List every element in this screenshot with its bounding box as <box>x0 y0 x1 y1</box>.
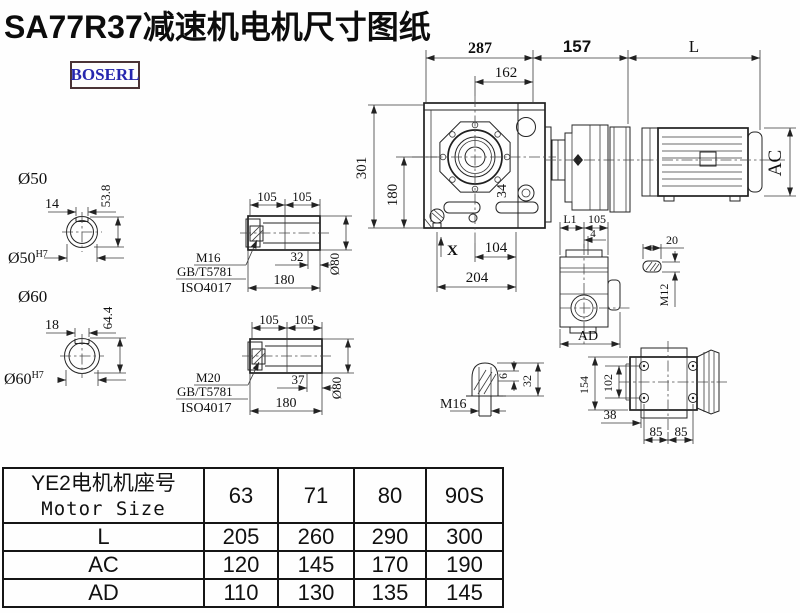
cell-AC-71: 145 <box>278 551 354 579</box>
dim-d80a: Ø80 <box>327 253 342 275</box>
dim-180b: 180 <box>276 396 297 411</box>
drawing-page: SA77R37减速机电机尺寸图纸 BOSERL <box>0 0 800 613</box>
row-label-AC: AC <box>3 551 204 579</box>
dim-105b: 105 <box>292 189 312 204</box>
cell-AD-63: 110 <box>204 579 278 607</box>
label-d60h7: Ø60H7 <box>4 370 44 388</box>
motor-side-view <box>545 125 785 212</box>
rear-view: 154 102 38 85 85 <box>577 341 727 444</box>
dim-105e: 105 <box>588 212 606 226</box>
cell-AD-71: 130 <box>278 579 354 607</box>
dim-180-vertical: 180 <box>385 184 401 207</box>
bore-50: Ø50 <box>8 250 36 267</box>
label-m20: M20 <box>196 370 221 385</box>
label-iso-a: ISO4017 <box>181 281 232 296</box>
column-header-71: 71 <box>278 468 354 523</box>
label-m12: M12 <box>657 284 671 307</box>
cell-L-90s: 300 <box>426 523 503 551</box>
cell-AD-90s: 145 <box>426 579 503 607</box>
dim-105d: 105 <box>294 312 314 327</box>
shaft-section-50: Ø50 14 53.8 Ø50H7 <box>8 169 124 267</box>
dim-104: 104 <box>485 240 508 256</box>
label-d50: Ø50 <box>18 169 47 188</box>
dim-162: 162 <box>495 65 518 81</box>
cell-L-71: 260 <box>278 523 354 551</box>
dim-287: 287 <box>468 40 492 57</box>
label-d60: Ø60 <box>18 287 47 306</box>
motor-size-table: YE2电机机座号 Motor Size 63 71 80 90S L 205 2… <box>2 467 504 608</box>
dim-180a: 180 <box>274 273 295 288</box>
dim-64.4: 64.4 <box>100 306 115 329</box>
dim-34: 34 <box>495 184 510 198</box>
header-motor-size-en: Motor Size <box>4 497 203 521</box>
label-d50h7: Ø50H7 <box>8 249 48 267</box>
dim-154: 154 <box>577 376 591 394</box>
dim-18: 18 <box>45 318 59 333</box>
table-row-AD: AD 110 130 135 145 <box>3 579 503 607</box>
dim-AD: AD <box>578 329 598 344</box>
shaft-section-60: Ø60 18 64.4 Ø60H7 <box>4 287 126 388</box>
table-row-AC: AC 120 145 170 190 <box>3 551 503 579</box>
motor-nameplate <box>700 152 716 166</box>
hollow-shaft-detail-m16: 105 105 32 180 Ø80 M16 GB/T5781 ISO4017 <box>176 189 352 296</box>
dim-14: 14 <box>45 197 59 212</box>
dim-105a: 105 <box>257 189 277 204</box>
dim-32: 32 <box>291 249 304 264</box>
bore-60-tolerance: H7 <box>32 370 44 381</box>
dim-6: 6 <box>496 373 510 379</box>
cell-L-63: 205 <box>204 523 278 551</box>
bore-60: Ø60 <box>4 371 32 388</box>
header-motor-size-cn: YE2电机机座号 <box>4 471 203 497</box>
row-label-AD: AD <box>3 579 204 607</box>
cell-L-80: 290 <box>354 523 426 551</box>
label-iso-b: ISO4017 <box>181 401 232 416</box>
main-view-dimensions: 287 162 157 L 301 180 AC <box>354 37 796 292</box>
dim-20: 20 <box>666 233 678 247</box>
dim-85a: 85 <box>650 424 663 439</box>
column-header-90s: 90S <box>426 468 503 523</box>
column-header-63: 63 <box>204 468 278 523</box>
row-label-L: L <box>3 523 204 551</box>
dim-d80b: Ø80 <box>329 377 344 399</box>
dim-301: 301 <box>354 157 370 180</box>
dim-38: 38 <box>604 407 617 422</box>
dim-4: 4 <box>590 228 596 240</box>
dim-L1: L1 <box>563 212 576 226</box>
table-header-row: YE2电机机座号 Motor Size 63 71 80 90S <box>3 468 503 523</box>
dim-32-plug: 32 <box>520 375 534 387</box>
dim-204: 204 <box>466 270 489 286</box>
dim-X: X <box>447 243 458 259</box>
label-gb-b: GB/T5781 <box>177 384 233 399</box>
hollow-shaft-detail-m20: 105 105 37 180 Ø80 M20 GB/T5781 ISO4017 <box>176 312 354 416</box>
gearbox-front-view <box>412 96 556 243</box>
gearbox-side-view: L1 105 4 AD <box>560 212 630 348</box>
dim-53.8: 53.8 <box>98 185 113 208</box>
column-header-80: 80 <box>354 468 426 523</box>
header-motor-size: YE2电机机座号 Motor Size <box>3 468 204 523</box>
key-detail: 20 M12 <box>643 233 684 307</box>
cell-AC-90s: 190 <box>426 551 503 579</box>
label-gb-a: GB/T5781 <box>177 264 233 279</box>
technical-drawing: 287 162 157 L 301 180 AC <box>0 0 800 465</box>
dim-157: 157 <box>563 37 591 56</box>
label-m16-plug: M16 <box>440 397 466 412</box>
dim-37: 37 <box>292 372 306 387</box>
dim-85b: 85 <box>675 424 688 439</box>
dim-AC: AC <box>765 150 786 176</box>
table-row-L: L 205 260 290 300 <box>3 523 503 551</box>
plug-detail: M16 6 32 <box>440 361 544 416</box>
bore-50-tolerance: H7 <box>36 249 48 260</box>
cell-AC-63: 120 <box>204 551 278 579</box>
cell-AC-80: 170 <box>354 551 426 579</box>
label-m16: M16 <box>196 250 221 265</box>
dim-102: 102 <box>601 374 615 392</box>
dim-L: L <box>689 37 699 56</box>
dim-105c: 105 <box>259 312 279 327</box>
cell-AD-80: 135 <box>354 579 426 607</box>
